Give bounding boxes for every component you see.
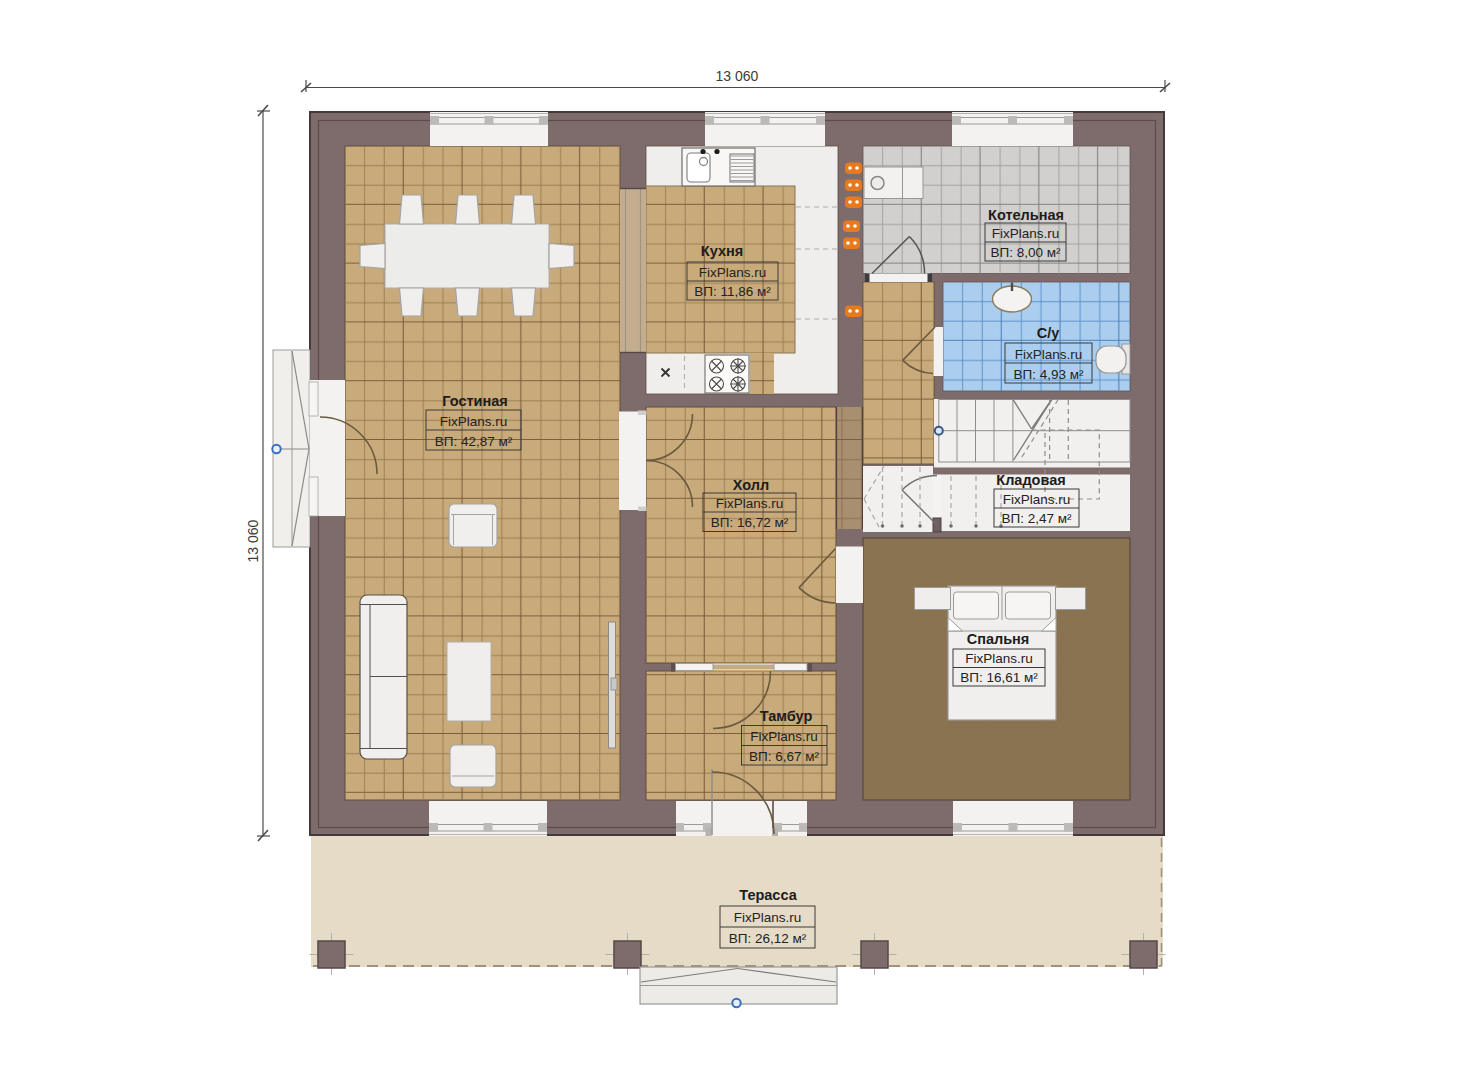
svg-text:FixPlans.ru: FixPlans.ru	[734, 910, 802, 925]
svg-text:ВП: 4,93 м²: ВП: 4,93 м²	[1013, 367, 1084, 382]
svg-text:Котельная: Котельная	[988, 207, 1064, 223]
svg-text:ВП: 2,47 м²: ВП: 2,47 м²	[1001, 511, 1072, 526]
svg-text:Кухня: Кухня	[701, 243, 743, 259]
svg-text:FixPlans.ru: FixPlans.ru	[716, 496, 784, 511]
svg-text:13 060: 13 060	[716, 68, 759, 84]
svg-text:Терасса: Терасса	[739, 887, 797, 903]
svg-text:ВП: 16,72 м²: ВП: 16,72 м²	[711, 515, 789, 530]
svg-text:ВП: 8,00 м²: ВП: 8,00 м²	[990, 245, 1061, 260]
svg-text:FixPlans.ru: FixPlans.ru	[992, 226, 1060, 241]
svg-text:ВП: 6,67 м²: ВП: 6,67 м²	[749, 749, 820, 764]
svg-text:FixPlans.ru: FixPlans.ru	[1015, 347, 1083, 362]
svg-text:ВП: 11,86 м²: ВП: 11,86 м²	[694, 284, 771, 299]
svg-text:FixPlans.ru: FixPlans.ru	[965, 651, 1033, 666]
svg-text:Спальня: Спальня	[967, 631, 1030, 647]
svg-text:С/у: С/у	[1037, 325, 1060, 341]
svg-text:FixPlans.ru: FixPlans.ru	[440, 414, 508, 429]
svg-text:ВП: 16,61 м²: ВП: 16,61 м²	[960, 670, 1038, 685]
svg-text:Кладовая: Кладовая	[996, 472, 1065, 488]
svg-text:FixPlans.ru: FixPlans.ru	[1003, 492, 1071, 507]
svg-text:FixPlans.ru: FixPlans.ru	[699, 265, 767, 280]
svg-text:FixPlans.ru: FixPlans.ru	[750, 729, 818, 744]
svg-text:ВП: 26,12 м²: ВП: 26,12 м²	[729, 931, 807, 946]
svg-text:13 060: 13 060	[245, 519, 261, 562]
svg-text:Гостиная: Гостиная	[442, 393, 508, 409]
svg-text:ВП: 42,87 м²: ВП: 42,87 м²	[435, 434, 513, 449]
svg-text:Холл: Холл	[733, 477, 769, 493]
svg-text:Тамбур: Тамбур	[760, 708, 813, 724]
